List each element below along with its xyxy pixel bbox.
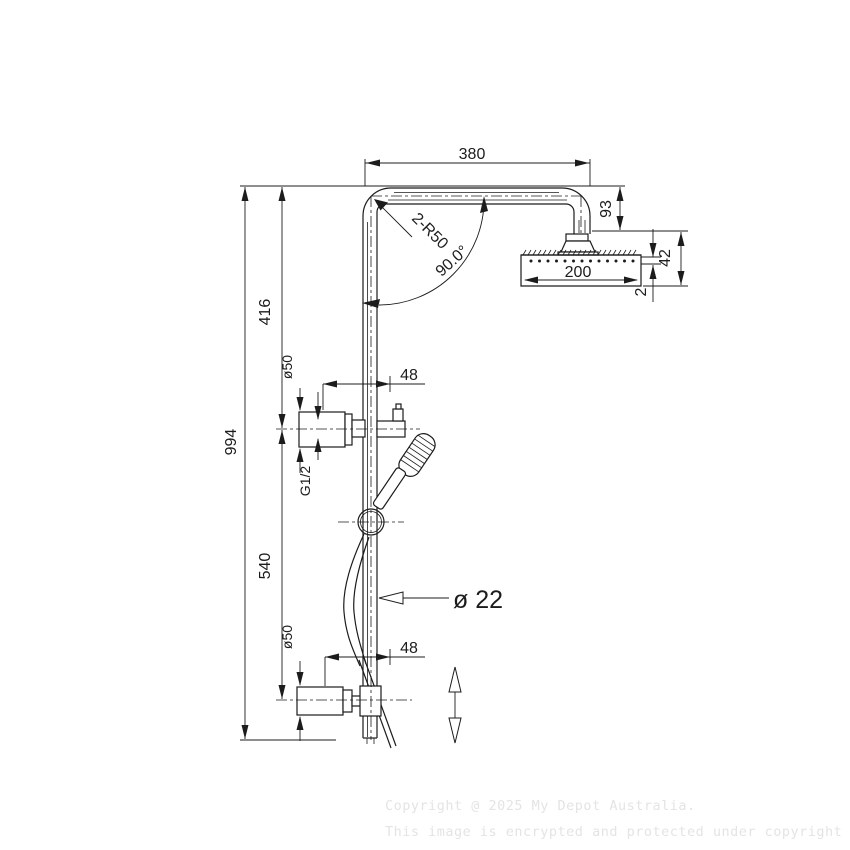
dim-faceplate-thickness-label: 2: [633, 287, 650, 296]
dim-head-diameter-label: 200: [565, 264, 592, 281]
dim-thread-size-label: G1/2: [297, 466, 313, 497]
dim-corner-radius-label: 2-R50: [408, 210, 451, 253]
dim-overall-height: 994: [223, 187, 249, 739]
dim-bend-angle: 90.0°: [362, 196, 488, 308]
dim-rail-diameter-label: ø 22: [453, 586, 503, 614]
hand-shower: [372, 430, 439, 510]
watermark: Copyright @ 2025 My Depot Australia. Thi…: [385, 798, 850, 840]
shower-arm-and-rail: [363, 188, 590, 738]
dim-head-assembly-height: 42: [657, 232, 685, 285]
dim-diverter-diameter-label: ø50: [279, 355, 295, 379]
dim-corner-radius: 2-R50: [374, 199, 451, 253]
watermark-line1: Copyright @ 2025 My Depot Australia.: [385, 798, 696, 814]
bottom-valve-assembly: [297, 686, 381, 716]
height-adjust-arrow: [449, 667, 461, 743]
watermark-line2: This image is encrypted and protected un…: [385, 824, 850, 840]
dim-arm-length: 380: [365, 146, 590, 167]
diverter-knob: [393, 409, 403, 421]
technical-drawing: 380 2-R50 90.0° 93 42 2 20: [0, 0, 850, 850]
dim-head-drop-label: 93: [598, 200, 615, 218]
nozzle-dots: [530, 260, 635, 263]
dim-lower-section-label: 540: [257, 553, 274, 580]
dim-valve-offset: 48: [325, 640, 425, 661]
dim-arm-length-label: 380: [459, 146, 486, 163]
extension-lines: [240, 159, 688, 740]
diverter-assembly: [299, 404, 405, 447]
dim-head-assembly-height-label: 42: [657, 249, 674, 267]
dim-valve-diameter-label: ø50: [279, 625, 295, 649]
dim-head-diameter: 200: [524, 264, 638, 284]
dim-diverter-offset: 48: [323, 367, 425, 388]
dim-overall-height-label: 994: [223, 429, 240, 456]
dim-faceplate-thickness: 2: [633, 229, 657, 302]
dim-diverter-offset-label: 48: [400, 367, 418, 384]
dim-upper-section-label: 416: [257, 299, 274, 326]
dim-rail-diameter: ø 22: [379, 586, 503, 614]
dim-lower-section: 540: [257, 430, 286, 699]
rail-slider-block: [360, 686, 381, 716]
dim-head-drop: 93: [598, 187, 624, 230]
arm-head-connector: [558, 234, 598, 255]
dim-valve-diameter: ø50: [279, 625, 304, 741]
rail-end: [363, 738, 377, 744]
technical-drawing-page: 380 2-R50 90.0° 93 42 2 20: [0, 0, 850, 850]
dim-upper-section: 416: [257, 187, 286, 428]
dim-valve-offset-label: 48: [400, 640, 418, 657]
